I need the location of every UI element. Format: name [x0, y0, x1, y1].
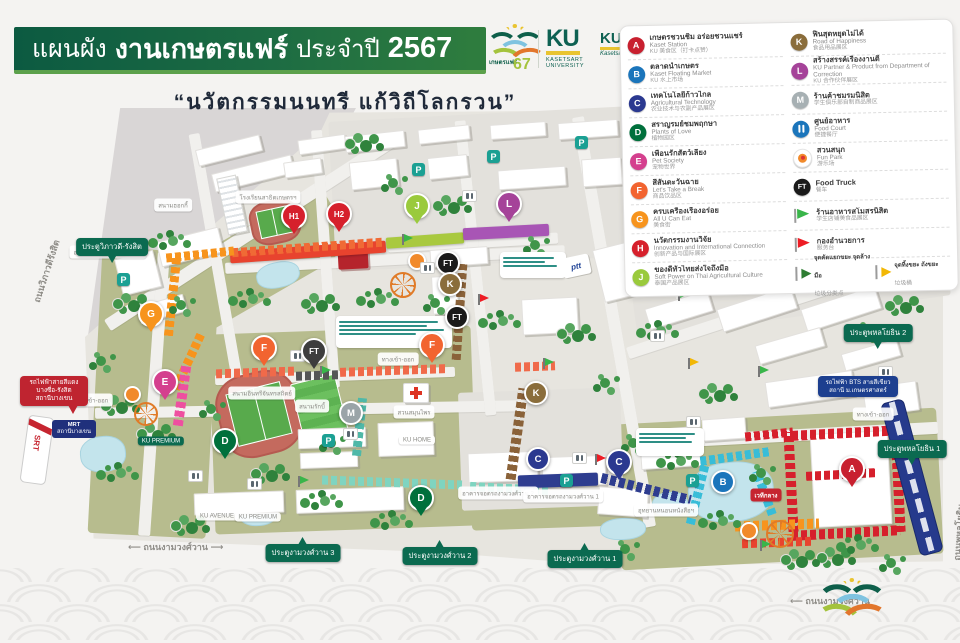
- tree-cluster: [698, 388, 710, 400]
- b: [701, 416, 746, 441]
- fair-slogan: “นวัตกรรมนนทรี แก้วิถีโลกรวน”: [110, 86, 580, 119]
- map-marker-k[interactable]: K: [524, 381, 548, 405]
- info-bubble: [636, 428, 704, 456]
- road-label-vibhavadi: ถนนวิภาวดีรังสิต: [30, 238, 63, 304]
- parking-icon: P: [686, 474, 699, 487]
- map-marker-ft[interactable]: FT: [445, 305, 469, 329]
- legend-item-text: เพื่อนรักสัตว์เลี้ยงPet Society宠物世界: [652, 149, 707, 172]
- tree-cluster: [228, 296, 238, 306]
- map-marker-g[interactable]: G: [138, 301, 164, 327]
- student-restaurant-flag-icon: [688, 358, 699, 369]
- legend-item-m: Mร้านค้าชมรมนิสิต学生俱乐部自制商品展区: [791, 83, 947, 115]
- waste-pennant-icon: จุดทิ้งขยะ ถังขยะ垃圾桶: [875, 253, 951, 290]
- ferris: [390, 272, 416, 298]
- legend-item-text: เกษตรชวนชิม อร่อยชวนแชร์Kaset StationKU …: [649, 32, 743, 56]
- legend-item-h: HนวัตกรรมงานวิจัยInnovation and Internat…: [632, 231, 788, 263]
- map-marker-l[interactable]: L: [496, 191, 522, 217]
- gate-balloon[interactable]: ประตูพหลโยธิน 2: [844, 324, 913, 342]
- operations-flag-icon: [595, 454, 606, 465]
- legend-item-text: ตลาดน้ำเกษตรKaset Floating MarketKU 水上市场: [650, 62, 712, 85]
- tree-cluster: [636, 328, 646, 338]
- legend-item-foodcourt: ศูนย์อาหารFood Court便捷餐厅: [792, 112, 948, 144]
- srt-red-line-train: SRT: [19, 415, 54, 486]
- left-arrow-icon: ⟵: [128, 542, 143, 552]
- parking-icon: P: [487, 150, 500, 163]
- map-label: อุทยานหนอนหนังสือฯ: [634, 504, 698, 517]
- tree-cluster: [96, 470, 106, 480]
- legend-item-d: Dสราญรมย์ชมพฤกษาPlants of Love植物园区: [629, 115, 785, 147]
- map-label: สนามรักบี้: [295, 400, 329, 413]
- student-restaurant-flag-icon: [298, 476, 309, 487]
- map-marker-c[interactable]: C: [526, 447, 550, 471]
- parking-icon: P: [560, 474, 573, 487]
- student-restaurant-flag-icon: [794, 209, 811, 223]
- b: [300, 451, 359, 469]
- map-marker-b[interactable]: B: [711, 470, 735, 494]
- map-marker-ft[interactable]: FT: [301, 338, 327, 364]
- map-marker-h2[interactable]: H2: [326, 201, 352, 227]
- tree-cluster: [600, 378, 610, 388]
- student-restaurant-flag-icon: [760, 540, 771, 551]
- restroom-icon: [343, 428, 358, 440]
- map-marker-d[interactable]: D: [212, 428, 238, 454]
- parking-icon: P: [412, 163, 425, 176]
- map-label: สวนสมุนไพร: [393, 406, 434, 419]
- fun-park-icon: [793, 148, 812, 167]
- tree-cluster: [780, 554, 792, 566]
- legend-marker-b: B: [628, 65, 645, 82]
- map-marker-k[interactable]: K: [438, 272, 462, 296]
- legend-item-text: Food Truck餐车: [815, 178, 856, 194]
- legend-marker-m: M: [792, 91, 809, 108]
- tree-cluster: [756, 468, 766, 478]
- tree-cluster: [176, 300, 186, 310]
- b: [296, 486, 405, 514]
- map-marker-j[interactable]: J: [404, 193, 430, 219]
- parking-icon: P: [575, 136, 588, 149]
- food-court-icon: [792, 120, 809, 137]
- clown: [740, 522, 758, 540]
- legend-marker-g: G: [631, 210, 648, 227]
- tree-cluster: [816, 552, 828, 564]
- legend-item-text: ร้านค้าชมรมนิสิต学生俱乐部自制商品展区: [814, 91, 878, 107]
- legend-item-ft: FTFood Truck餐车: [793, 170, 949, 202]
- first-aid-building: [403, 383, 429, 403]
- map-label: สนามอินทรีจันทรสถิตย์: [228, 387, 295, 400]
- legend-item-c: Cเทคโนโลยีก้าวไกลAgricultural Technology…: [629, 86, 785, 118]
- legend-item-l: Lสร้างสรรค์เรื่องงานดีKU Partner & Produ…: [791, 54, 947, 86]
- map-label: KU PREMIUM: [138, 437, 184, 446]
- tree-cluster: [698, 518, 708, 528]
- left-arrow-icon: ⟵: [790, 596, 805, 606]
- red-line-sign: รถไฟฟ้าสายสีแดงบางซื่อ-รังสิตสถานีบางเขน: [20, 376, 88, 406]
- map-label: ทางเข้า-ออก: [853, 408, 894, 421]
- restroom-icon: [686, 416, 701, 428]
- map-label: สนามฮอกกี้: [154, 199, 192, 212]
- legend-item-a: Aเกษตรชวนชิม อร่อยชวนแชร์Kaset StationKU…: [627, 28, 783, 60]
- legend-item-text: เทคโนโลยีก้าวไกลAgricultural Technology农…: [651, 91, 716, 114]
- map-label: ทางเข้า-ออก: [378, 353, 419, 366]
- road-label-phahonyothin: ถนนพหลโยธิน: [950, 503, 960, 561]
- legend-item-b: Bตลาดน้ำเกษตรKaset Floating MarketKU 水上市…: [628, 57, 784, 89]
- b: [581, 157, 623, 188]
- legend-marker-d: D: [629, 123, 646, 140]
- fair-map-poster: SRT รถไฟฟ้าสายสีแดงบางซื่อ-รังสิตสถานีบา…: [0, 0, 960, 640]
- food-truck-icon: FT: [793, 178, 810, 195]
- tree-cluster: [300, 498, 310, 508]
- road-label-ngamwongwan-west: ⟵ ถนนงามวงศ์วาน ⟶: [128, 540, 223, 554]
- map-marker-c[interactable]: C: [606, 449, 632, 475]
- legend-item-e: Eเพื่อนรักสัตว์เลี้ยงPet Society宠物世界: [630, 144, 786, 176]
- tree-cluster: [370, 518, 380, 528]
- b: [427, 154, 469, 180]
- legend-item-g: Gครบเครื่องเรื่องอร่อยAll U Can Eat美食街: [631, 202, 787, 234]
- tree-cluster: [170, 520, 182, 532]
- legend-item-funpark: สวนสนุกFun Park游乐场: [793, 141, 949, 173]
- legend-marker-a: A: [627, 37, 644, 54]
- gate-balloon[interactable]: ประตูงามวงศ์วาน 2: [403, 547, 478, 565]
- legend-marker-j: J: [632, 268, 649, 285]
- tree-cluster: [656, 458, 666, 468]
- legend-marker-l: L: [791, 62, 808, 79]
- logo-divider: [538, 30, 539, 68]
- tree-cluster: [206, 404, 216, 414]
- kaset-fair-logo: เกษตรแฟร์ 67: [487, 24, 535, 76]
- legend-item-text: สราญรมย์ชมพฤกษาPlants of Love植物园区: [651, 120, 717, 143]
- map-marker-f[interactable]: F: [419, 332, 445, 358]
- page-title-suffix: ประจำปี: [296, 29, 380, 68]
- parking-icon: P: [322, 434, 335, 447]
- legend-item-text: สร้างสรรค์เรื่องงานดีKU Partner & Produc…: [813, 53, 947, 85]
- student-restaurant-flag-icon: [758, 366, 769, 377]
- student-restaurant-flag-icon: [543, 358, 554, 369]
- tree-cluster: [530, 240, 540, 250]
- legend-column-left: Aเกษตรชวนชิม อร่อยชวนแชร์Kaset StationKU…: [627, 28, 787, 291]
- page-title-prefix: แผนผัง: [32, 29, 107, 69]
- clown: [124, 386, 141, 403]
- legend-item-text: นวัตกรรมงานวิจัยInnovation and Internati…: [654, 235, 766, 259]
- restroom-icon: [188, 470, 203, 482]
- legend-marker-h: H: [632, 239, 649, 256]
- map-marker-a[interactable]: A: [839, 456, 865, 482]
- map-label: เวทีกลาง: [751, 489, 782, 502]
- map-legend: Aเกษตรชวนชิม อร่อยชวนแชร์Kaset StationKU…: [619, 19, 959, 298]
- map-label: KU AVENUE: [196, 512, 238, 521]
- legend-item-f: FสีสันตะวันฉายLet's Take a Break商品饮品区: [630, 173, 786, 205]
- tree-cluster: [388, 178, 398, 188]
- legend-item-text: ครบเครื่องเรื่องอร่อยAll U Can Eat美食街: [653, 207, 719, 230]
- gate-balloon[interactable]: ประตูพหลโยธิน 1: [878, 440, 947, 458]
- map-marker-e[interactable]: E: [152, 369, 178, 395]
- gate-balloon[interactable]: ประตูวิภาวดี-รังสิต: [76, 238, 148, 256]
- mrt-sign: MRTสถานีบางเขน: [52, 420, 96, 438]
- restroom-icon: [572, 452, 587, 464]
- tree-cluster: [112, 298, 124, 310]
- legend-item-flag-green: ร้านอาหารสโมสรนิสิต学生店铺美食品展区: [794, 199, 950, 231]
- map-marker-d[interactable]: D: [408, 485, 434, 511]
- legend-item-text: ฟินสุดหยุดไม่ได้Road of Happiness食品用品展区: [812, 29, 866, 52]
- map-label: KU HOME: [399, 436, 435, 445]
- tree-cluster: [148, 238, 158, 248]
- legend-item-text: ร้านอาหารสโมสรนิสิต学生店铺美食品展区: [816, 206, 888, 222]
- restroom-icon: [420, 262, 435, 274]
- restroom-icon: [650, 330, 665, 342]
- tree-cluster: [556, 328, 568, 340]
- restroom-icon: [247, 478, 262, 490]
- tree-cluster: [478, 318, 488, 328]
- tree-cluster: [886, 558, 896, 568]
- legend-item-text: สีสันตะวันฉายLet's Take a Break商品饮品区: [652, 178, 704, 201]
- fair-logo-year: 67: [513, 56, 531, 74]
- b: [521, 297, 579, 336]
- student-restaurant-flag-icon: [320, 366, 331, 377]
- legend-marker-k: K: [790, 33, 807, 50]
- tree-cluster: [836, 542, 846, 552]
- tree-cluster: [356, 296, 366, 306]
- map-marker-m[interactable]: M: [339, 401, 363, 425]
- map-label: โรงเรียนสาธิตเกษตรฯ: [236, 191, 301, 204]
- legend-item-text: สวนสนุกFun Park游乐场: [817, 146, 846, 169]
- tree-cluster: [344, 138, 356, 150]
- legend-item-pennants: จุดคัดแยกขยะ จุดล้างมือ垃圾分类点จุดทิ้งขยะ ถ…: [795, 257, 951, 288]
- page-title-year: 2567: [388, 32, 453, 65]
- bts-sign: รถไฟฟ้า BTS สายสีเขียวสถานี ม.เกษตรศาสตร…: [818, 376, 898, 397]
- tree-cluster: [432, 200, 444, 212]
- gate-balloon[interactable]: ประตูงามวงศ์วาน 3: [266, 544, 341, 562]
- tree-cluster: [300, 298, 312, 310]
- map-label: อาคารจอดรถงามวงศ์วาน 1: [523, 490, 603, 503]
- tree-cluster: [884, 300, 896, 312]
- legend-item-text: ศูนย์อาหารFood Court便捷餐厅: [814, 117, 851, 140]
- legend-item-j: Jของดีทั่วไทยส่งใจถึงมือSoft Power on Th…: [632, 260, 788, 291]
- parking-icon: P: [117, 273, 130, 286]
- restroom-icon: [462, 190, 477, 202]
- legend-marker-c: C: [629, 94, 646, 111]
- legend-item-text: ของดีทั่วไทยส่งใจถึงมือSoft Power on Tha…: [654, 264, 763, 288]
- tree-cluster: [96, 356, 106, 366]
- kaset-fair-corner-logo: [818, 580, 878, 632]
- legend-marker-e: E: [630, 152, 647, 169]
- stall-row: [296, 370, 338, 380]
- student-restaurant-flag-icon: [402, 234, 413, 245]
- right-arrow-icon: ⟶: [208, 542, 223, 552]
- ferris: [134, 402, 158, 426]
- title-banner: แผนผัง งานเกษตรแฟร์ ประจำปี 2567: [14, 27, 486, 74]
- ku-logo: KU KASETSARTUNIVERSITY: [546, 28, 598, 70]
- legend-marker-f: F: [630, 181, 647, 198]
- operations-flag-icon: [478, 294, 489, 305]
- tree-cluster: [430, 298, 440, 308]
- map-label: KU PREMIUM: [235, 513, 281, 522]
- gate-balloon[interactable]: ประตูงามวงศ์วาน 1: [548, 550, 623, 568]
- waste-pennant-icon: จุดคัดแยกขยะ จุดล้างมือ垃圾分类点: [795, 245, 871, 300]
- legend-item-k: Kฟินสุดหยุดไม่ได้Road of Happiness食品用品展区: [790, 25, 946, 57]
- map-marker-f[interactable]: F: [251, 335, 277, 361]
- page-title-main: งานเกษตรแฟร์: [115, 27, 288, 70]
- legend-column-right: Kฟินสุดหยุดไม่ได้Road of Happiness食品用品展区…: [790, 25, 950, 288]
- info-bubble: [500, 252, 566, 278]
- map-marker-h1[interactable]: H1: [281, 203, 307, 229]
